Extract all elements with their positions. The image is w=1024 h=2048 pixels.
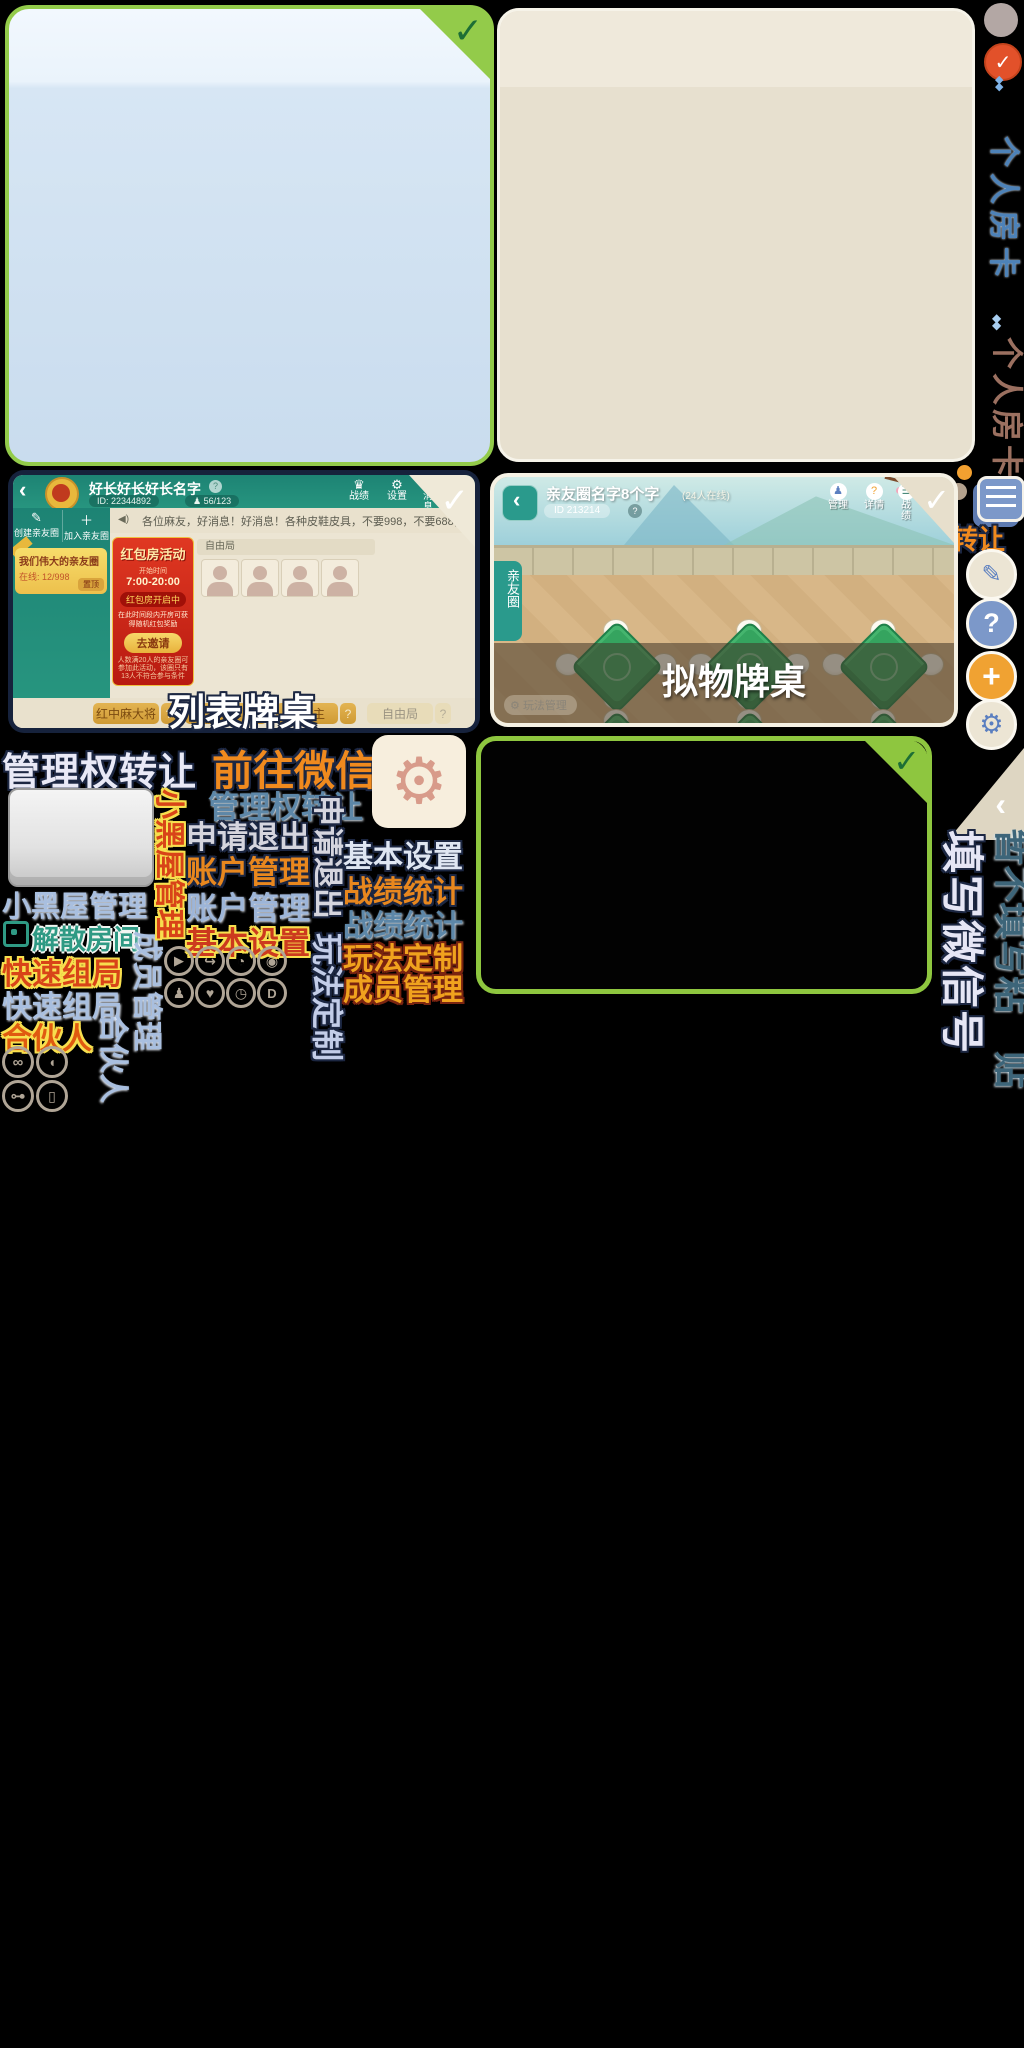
orange-dot-icon bbox=[957, 465, 972, 480]
create-circle-button[interactable]: ✎ 创建亲友圈 bbox=[13, 510, 60, 539]
add-button[interactable]: + bbox=[966, 651, 1017, 702]
key-icon[interactable]: ⊶ bbox=[2, 1080, 34, 1112]
tab-game-4[interactable]: 自由局 bbox=[367, 703, 433, 724]
share-arrow-icon[interactable]: ↪ bbox=[195, 946, 225, 976]
room-online-count: (24人在线) bbox=[682, 487, 730, 502]
chevron-left-icon: ‹ bbox=[995, 786, 1006, 823]
collapse-corner-tab[interactable]: ‹ bbox=[948, 748, 1024, 840]
edit-pencil-button[interactable]: ✎ bbox=[966, 549, 1017, 600]
tab-personal-roomcard-inactive[interactable]: 个人房卡 bbox=[986, 337, 1024, 481]
cursor-diamond-icon: ◆◆ bbox=[992, 315, 1001, 329]
person-icon: ♟ bbox=[193, 496, 201, 506]
circle-card[interactable]: 我们伟大的亲友圈 在线: 12/998 置顶 bbox=[15, 548, 107, 594]
room-header: ‹ 亲友圈名字8个字 (24人在线) ID 213214 ? ♟ 管理 ? 详情… bbox=[494, 477, 954, 545]
id-icon[interactable]: D bbox=[257, 978, 287, 1008]
banner-status: 红包房开启中 bbox=[120, 592, 186, 607]
megaphone-icon[interactable]: ◖ bbox=[36, 1046, 68, 1078]
records-list-icon[interactable] bbox=[977, 476, 1024, 522]
check-icon: ✓ bbox=[923, 481, 950, 519]
fill-wechat-label: 填写微信号 bbox=[934, 830, 996, 1055]
eye-icon[interactable]: ◉ bbox=[257, 946, 287, 976]
back-button[interactable]: ‹ bbox=[502, 485, 538, 521]
banner-title: 红包房活动 bbox=[113, 544, 193, 563]
object-table-caption: 拟物牌桌 bbox=[662, 653, 806, 705]
seat-row bbox=[197, 559, 375, 599]
avatar-placeholder[interactable] bbox=[321, 559, 359, 597]
blank-button-sprite[interactable] bbox=[8, 788, 154, 887]
question-icon: ? bbox=[983, 608, 1000, 639]
check-icon: ✓ bbox=[893, 742, 920, 780]
door-icon[interactable]: ▯ bbox=[36, 1080, 68, 1112]
circle-name: 我们伟大的亲友圈 bbox=[19, 553, 103, 568]
label-member-manage-gold: 成员管理 bbox=[343, 965, 463, 1009]
settings-button[interactable]: ⚙ 设置 bbox=[387, 478, 407, 502]
selected-corner-badge: ✓ bbox=[864, 740, 928, 804]
settings-button[interactable]: ⚙ bbox=[966, 699, 1017, 750]
radio-unselected[interactable] bbox=[984, 3, 1018, 37]
dismiss-brackets-icon bbox=[3, 921, 29, 947]
personal-roomcard-selected-card[interactable]: ✓ bbox=[5, 5, 494, 466]
selected-corner-badge: ✓ bbox=[419, 8, 491, 80]
banner-time-label: 开始时间 bbox=[113, 566, 193, 576]
announcement-text: 各位麻友，好消息！好消息！各种皮鞋皮具，不要998，不要688，只要98元，只… bbox=[142, 513, 475, 529]
manage-button[interactable]: ♟ 管理 bbox=[828, 483, 848, 511]
invite-button[interactable]: 去邀请 bbox=[124, 633, 182, 653]
gear-icon: ⚙ bbox=[390, 744, 447, 819]
object-table-screenshot[interactable]: ‹ 亲友圈名字8个字 (24人在线) ID 213214 ? ♟ 管理 ? 详情… bbox=[490, 473, 958, 727]
join-circle-button[interactable]: ＋ 加入亲友圈 bbox=[62, 510, 110, 542]
question-icon: ? bbox=[866, 483, 883, 500]
back-icon: ‹ bbox=[513, 487, 520, 513]
detail-button[interactable]: ? 详情 bbox=[864, 483, 884, 511]
back-icon[interactable]: ‹ bbox=[19, 477, 26, 503]
custom-option-selected-card[interactable]: ✓ bbox=[476, 736, 932, 994]
tab-game-1[interactable]: 红中麻大将 bbox=[93, 703, 159, 724]
circle-emblem-icon bbox=[41, 475, 81, 509]
radio-selected[interactable]: ✓ bbox=[984, 43, 1022, 81]
room-id-badge: ID: 22344892 bbox=[89, 495, 159, 507]
help-icon[interactable]: ? bbox=[209, 480, 222, 493]
list-table-caption: 列表牌桌 bbox=[168, 682, 316, 736]
help-button[interactable]: ? bbox=[966, 598, 1017, 649]
gear-icon: ⚙ bbox=[387, 478, 407, 491]
trophy-icon: ♛ bbox=[349, 478, 369, 491]
tab-help-4[interactable]: ? bbox=[435, 703, 451, 724]
gear-icon: ⚙ bbox=[979, 709, 1003, 740]
check-icon: ✓ bbox=[453, 10, 483, 52]
playstyle-manage-pill[interactable]: ⚙ 玩法管理 bbox=[504, 695, 577, 715]
sprite-sheet-canvas: ✓ ✓ ◆◆ 个人房卡 ◆◆ 个人房卡 转让 ✎ ? + ⚙ ‹ 暂不填写 粘贴… bbox=[0, 0, 1024, 2048]
card-top-strip bbox=[500, 11, 972, 87]
pin-chip[interactable]: 置顶 bbox=[78, 578, 104, 591]
gear-icon: ⚙ bbox=[510, 700, 520, 712]
avatar-placeholder[interactable] bbox=[281, 559, 319, 597]
clock-icon[interactable]: ◷ bbox=[226, 978, 256, 1008]
personal-roomcard-unselected-card[interactable] bbox=[497, 8, 975, 462]
announcement-bar: ◀) 各位麻友，好消息！好消息！各种皮鞋皮具，不要998，不要688，只要98元… bbox=[110, 508, 475, 533]
room-title: 亲友圈名字8个字 bbox=[546, 483, 659, 504]
room-id-badge: ID 213214 bbox=[544, 504, 610, 518]
cursor-diamond-icon: ◆◆ bbox=[995, 77, 1003, 90]
settings-tile-button[interactable]: ⚙ bbox=[372, 735, 466, 828]
circle-side-tab[interactable]: 亲友圈 bbox=[490, 561, 522, 641]
banner-time: 7:00-20:00 bbox=[113, 576, 193, 588]
avatar-placeholder[interactable] bbox=[241, 559, 279, 597]
pencil-icon: ✎ bbox=[13, 510, 60, 526]
stats-button[interactable]: ♛ 战绩 bbox=[349, 478, 369, 502]
section-title-bar: 自由局 bbox=[197, 539, 375, 555]
coins-icon[interactable]: ∞ bbox=[2, 1046, 34, 1078]
check-icon: ✓ bbox=[995, 50, 1012, 75]
list-table-screenshot[interactable]: ‹ 好长好长好长名字 ? ID: 22344892 ♟ 56/123 ♛ 战绩 … bbox=[8, 470, 480, 733]
plus-icon: ＋ bbox=[63, 510, 110, 529]
tab-personal-roomcard-active[interactable]: 个人房卡 bbox=[984, 136, 1024, 284]
person-gear-icon: ♟ bbox=[830, 483, 847, 500]
member-desk-icon[interactable]: ♟ bbox=[164, 978, 194, 1008]
room-sidebar: ✎ 创建亲友圈 ＋ 加入亲友圈 我们伟大的亲友圈 在线: 12/998 置顶 bbox=[13, 508, 110, 698]
banner-desc: 在此时间段内开房可获得随机红包奖励 bbox=[117, 611, 189, 629]
tab-help-3[interactable]: ? bbox=[340, 703, 356, 724]
speaker-icon: ◀) bbox=[118, 514, 129, 525]
help-icon[interactable]: ? bbox=[628, 504, 642, 518]
label-blackroom-manage-vertical: 小黑屋管理 bbox=[150, 789, 194, 939]
room-header: ‹ 好长好长好长名字 ? ID: 22344892 ♟ 56/123 ♛ 战绩 … bbox=[13, 475, 475, 508]
member-count-badge: ♟ 56/123 bbox=[185, 495, 239, 507]
pencil-icon: ✎ bbox=[981, 560, 1001, 589]
redpacket-banner[interactable]: 红包房活动 开始时间 7:00-20:00 红包房开启中 在此时间段内开房可获得… bbox=[112, 537, 194, 686]
play-icon[interactable]: ▶ bbox=[164, 946, 194, 976]
avatar-placeholder[interactable] bbox=[201, 559, 239, 597]
pie-icon[interactable]: ◔ bbox=[226, 946, 256, 976]
heart-icon[interactable]: ♥ bbox=[195, 978, 225, 1008]
banner-note: 人数满20人的亲友圈可参加此活动，该圈只有13人不符合参与条件 bbox=[116, 657, 190, 681]
plus-icon: + bbox=[982, 658, 1001, 695]
